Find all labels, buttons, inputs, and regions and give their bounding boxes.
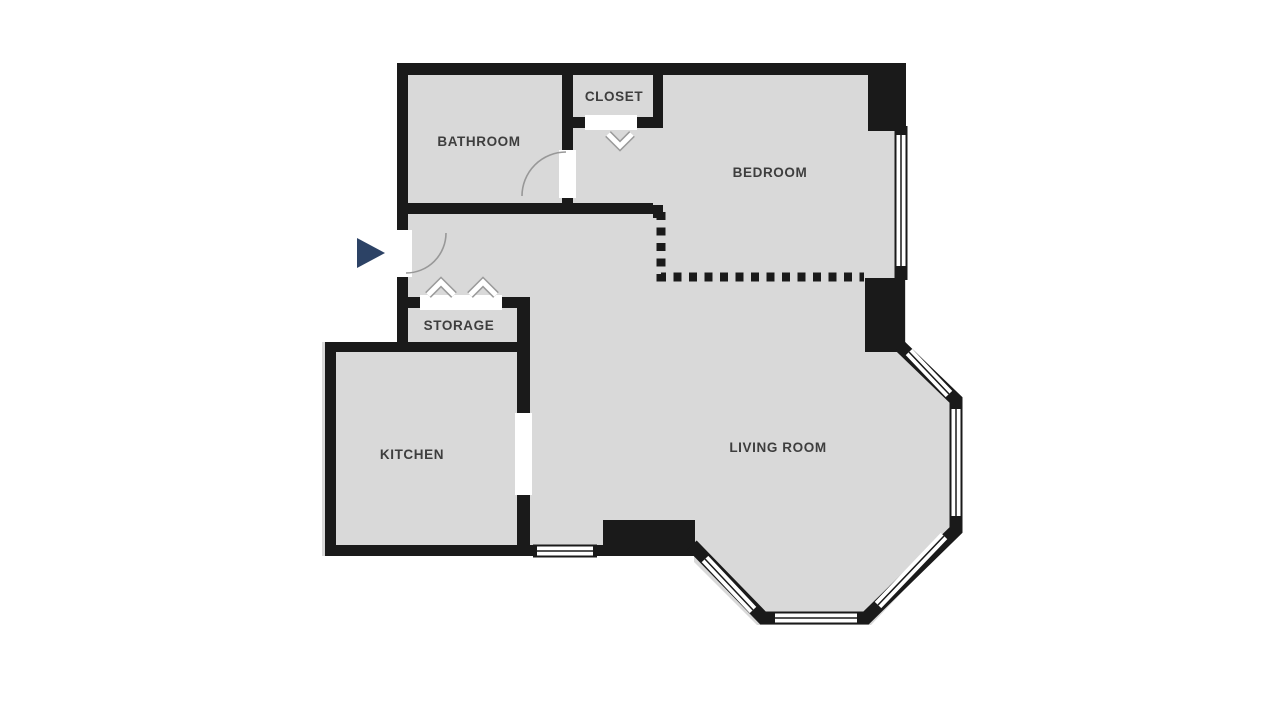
closet-door-opening (585, 115, 637, 130)
wall-segment (325, 342, 336, 556)
wall-segment (868, 63, 906, 131)
living-room-label: LIVING ROOM (729, 440, 826, 455)
entrance-door-opening (393, 230, 412, 277)
storage-label: STORAGE (424, 318, 495, 333)
wall-segment (562, 63, 573, 151)
floor-plan-canvas: BATHROOM CLOSET BEDROOM STORAGE KITCHEN … (0, 0, 1280, 720)
wall-segment (397, 63, 906, 75)
entrance-marker-icon (357, 238, 385, 268)
bathroom-door-opening (559, 150, 576, 198)
wall-segment (325, 342, 530, 352)
floor-plan-drawing: BATHROOM CLOSET BEDROOM STORAGE KITCHEN … (0, 0, 1280, 720)
kitchen-label: KITCHEN (380, 447, 444, 462)
wall-segment (603, 520, 695, 556)
wall-segment (397, 203, 653, 214)
wall-segment (397, 275, 408, 342)
wall-segment (865, 278, 905, 352)
wall-segment (567, 117, 587, 128)
wall-segment (635, 117, 653, 128)
storage-door-opening (420, 295, 502, 310)
wall-segment (653, 63, 663, 128)
closet-label: CLOSET (585, 89, 644, 104)
wall-segment (325, 545, 537, 556)
kitchen-passage-opening (515, 413, 532, 495)
bedroom-label: BEDROOM (733, 165, 808, 180)
bathroom-label: BATHROOM (437, 134, 520, 149)
wall-segment (517, 297, 530, 415)
wall-segment (397, 297, 422, 308)
